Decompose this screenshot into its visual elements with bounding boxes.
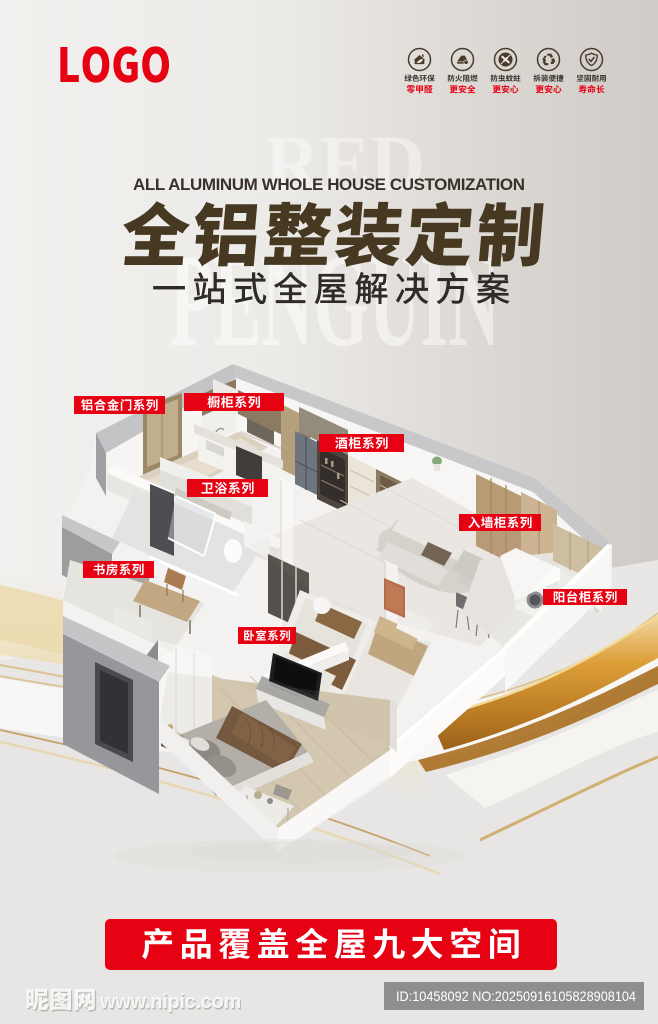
svg-text:ID:10458092 NO:202509161058289: ID:10458092 NO:20250916105828908104 — [396, 988, 636, 1004]
svg-text:www.nipic.com: www.nipic.com — [99, 991, 241, 1013]
svg-text:RED: RED — [265, 121, 425, 208]
svg-text:ALL ALUMINUM WHOLE HOUSE CUSTO: ALL ALUMINUM WHOLE HOUSE CUSTOMIZATION — [133, 175, 525, 194]
